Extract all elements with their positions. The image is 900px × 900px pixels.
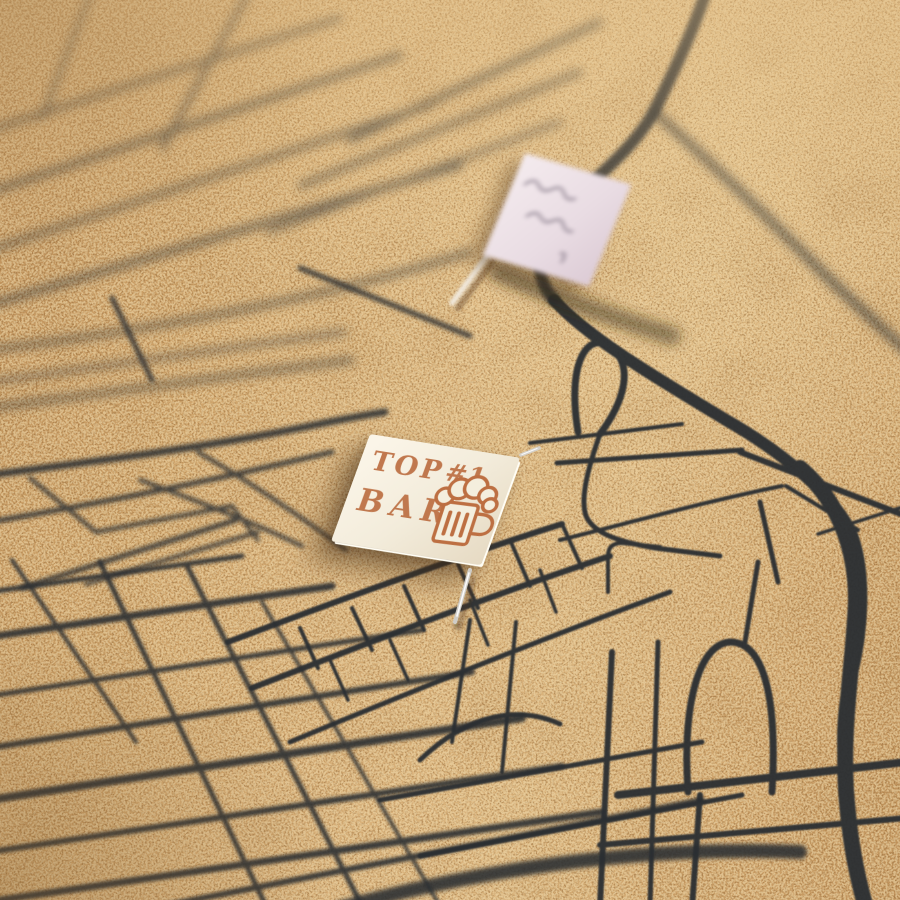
push-pin bbox=[0, 0, 900, 900]
photo-cork-map-board: TOP#1 BAR bbox=[0, 0, 900, 900]
